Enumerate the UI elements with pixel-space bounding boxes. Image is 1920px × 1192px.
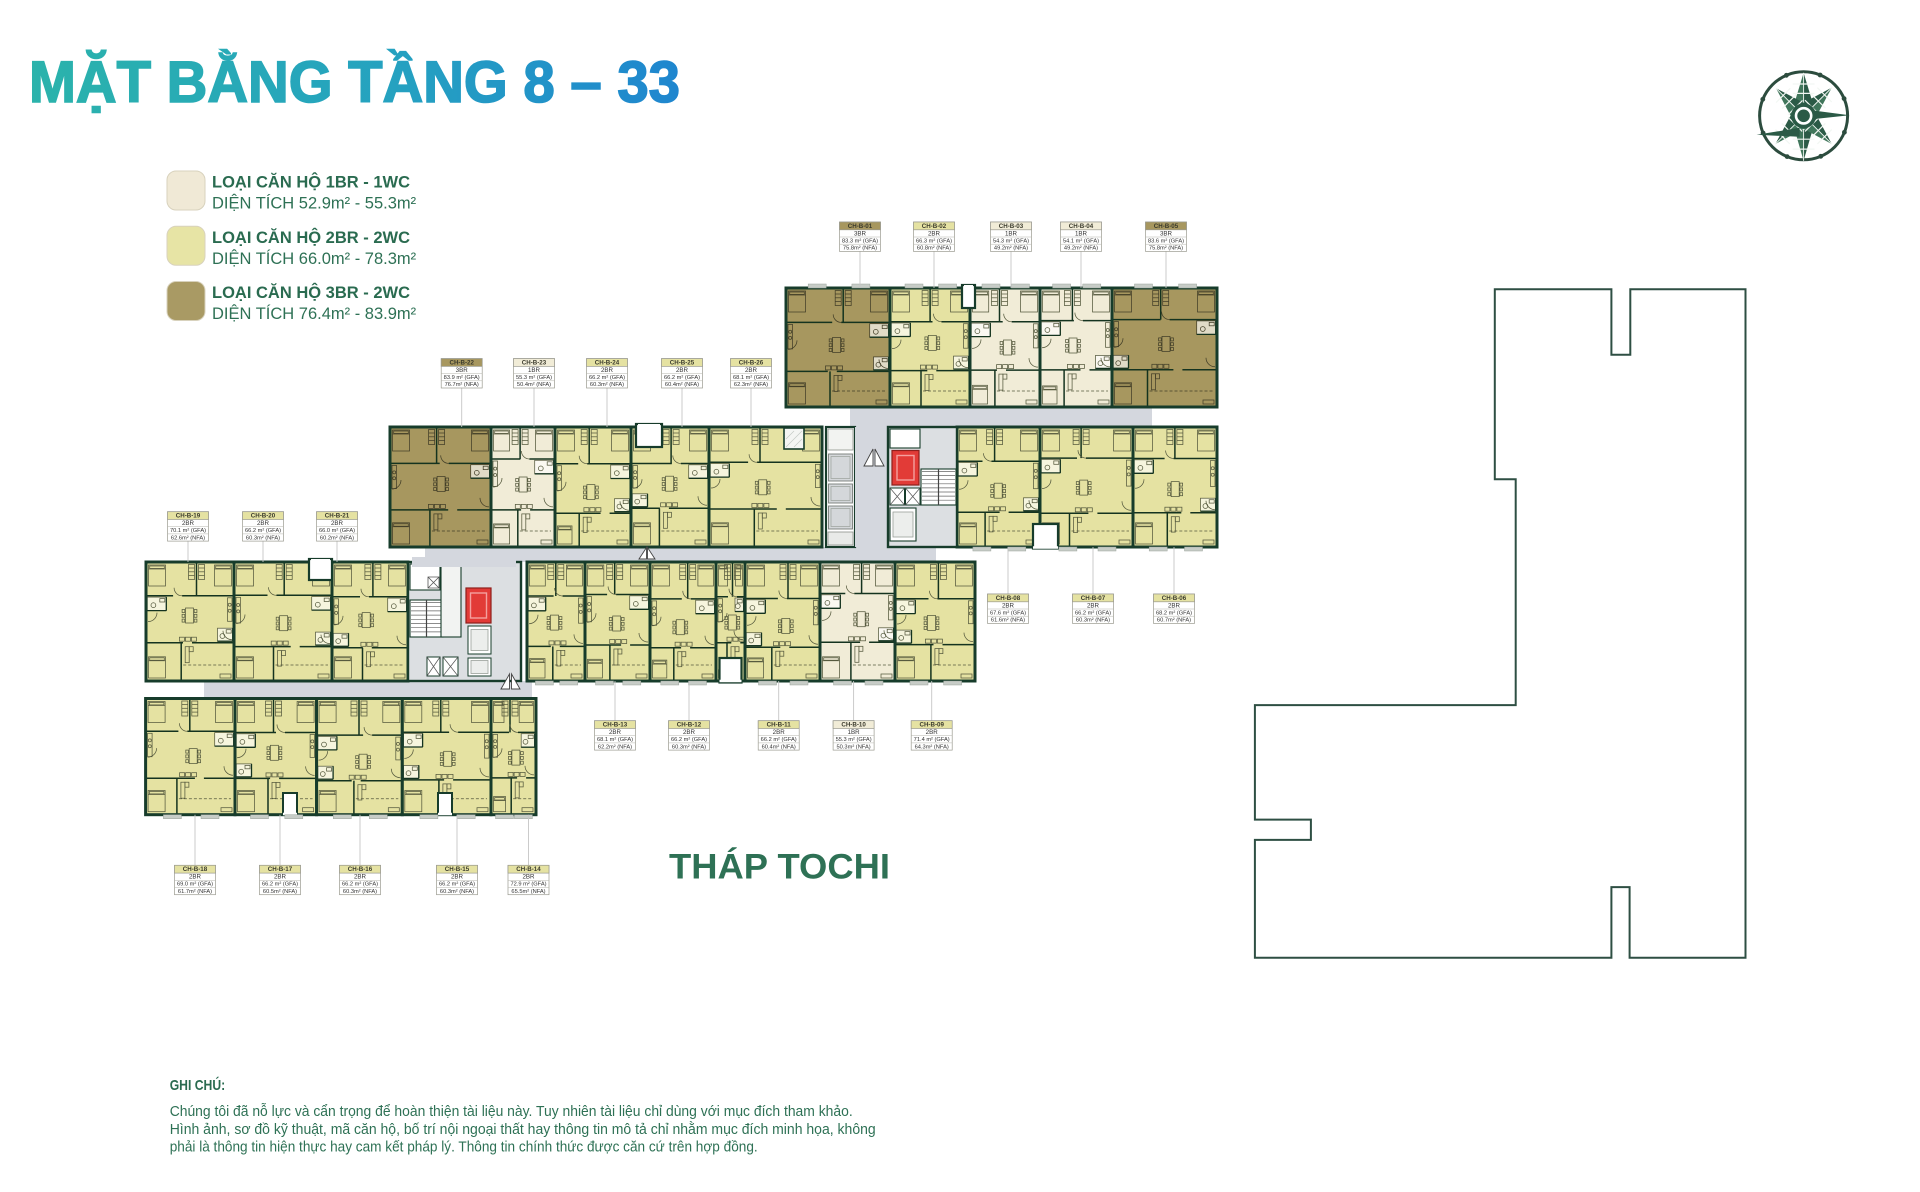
- svg-text:CH-B-25: CH-B-25: [670, 360, 695, 367]
- svg-text:CH-B-26: CH-B-26: [739, 360, 764, 367]
- svg-text:66.0 m² (GFA): 66.0 m² (GFA): [319, 528, 355, 534]
- svg-text:DIỆN TÍCH 76.4m² - 83.9m²: DIỆN TÍCH 76.4m² - 83.9m²: [212, 304, 417, 323]
- svg-text:66.2 m² (GFA): 66.2 m² (GFA): [262, 882, 298, 888]
- svg-text:67.6 m² (GFA): 67.6 m² (GFA): [990, 610, 1026, 616]
- svg-text:CH-B-09: CH-B-09: [919, 722, 944, 729]
- svg-text:66.2 m² (GFA): 66.2 m² (GFA): [439, 882, 475, 888]
- svg-text:CH-B-10: CH-B-10: [841, 722, 866, 729]
- svg-text:2BR: 2BR: [683, 729, 696, 736]
- svg-text:2BR: 2BR: [1168, 602, 1181, 609]
- svg-text:CH-B-13: CH-B-13: [603, 722, 628, 729]
- svg-text:2BR: 2BR: [1002, 602, 1015, 609]
- svg-text:66.2 m² (GFA): 66.2 m² (GFA): [342, 882, 378, 888]
- svg-text:CH-B-08: CH-B-08: [996, 595, 1021, 602]
- svg-text:2BR: 2BR: [926, 729, 939, 736]
- svg-text:2BR: 2BR: [451, 874, 464, 881]
- svg-text:CH-B-05: CH-B-05: [1154, 223, 1179, 230]
- svg-text:49.2m² (NFA): 49.2m² (NFA): [1064, 246, 1098, 252]
- svg-text:61.7m² (NFA): 61.7m² (NFA): [178, 889, 212, 895]
- svg-text:LOẠI CĂN HỘ 3BR - 2WC: LOẠI CĂN HỘ 3BR - 2WC: [212, 283, 410, 302]
- svg-text:2BR: 2BR: [257, 520, 270, 527]
- svg-text:2BR: 2BR: [522, 874, 535, 881]
- svg-text:CH-B-17: CH-B-17: [268, 866, 293, 873]
- svg-text:3BR: 3BR: [854, 230, 867, 237]
- svg-text:1BR: 1BR: [848, 729, 861, 736]
- svg-text:66.2 m² (GFA): 66.2 m² (GFA): [761, 737, 797, 743]
- svg-text:3BR: 3BR: [456, 367, 469, 374]
- svg-text:2BR: 2BR: [354, 874, 367, 881]
- svg-text:CH-B-06: CH-B-06: [1162, 595, 1187, 602]
- svg-text:CH-B-03: CH-B-03: [999, 223, 1024, 230]
- svg-text:54.1 m² (GFA): 54.1 m² (GFA): [1063, 238, 1099, 244]
- svg-text:LOẠI CĂN HỘ 1BR - 1WC: LOẠI CĂN HỘ 1BR - 1WC: [212, 173, 410, 192]
- svg-text:66.2 m² (GFA): 66.2 m² (GFA): [1075, 610, 1111, 616]
- svg-text:1BR: 1BR: [1075, 230, 1088, 237]
- svg-text:2BR: 2BR: [676, 367, 689, 374]
- svg-text:CH-B-02: CH-B-02: [922, 223, 947, 230]
- svg-text:60.4m² (NFA): 60.4m² (NFA): [665, 382, 699, 388]
- svg-text:68.2 m² (GFA): 68.2 m² (GFA): [1156, 610, 1192, 616]
- svg-text:66.2 m² (GFA): 66.2 m² (GFA): [671, 737, 707, 743]
- svg-text:72.9 m² (GFA): 72.9 m² (GFA): [510, 882, 546, 888]
- svg-text:66.2 m² (GFA): 66.2 m² (GFA): [589, 375, 625, 381]
- svg-text:66.2 m² (GFA): 66.2 m² (GFA): [664, 375, 700, 381]
- svg-text:CH-B-07: CH-B-07: [1081, 595, 1106, 602]
- svg-text:66.3 m² (GFA): 66.3 m² (GFA): [916, 238, 952, 244]
- svg-text:MẶT BẰNG TẦNG 8 – 33: MẶT BẰNG TẦNG 8 – 33: [29, 50, 680, 115]
- svg-text:75.8m² (NFA): 75.8m² (NFA): [1149, 246, 1183, 252]
- svg-text:CH-B-15: CH-B-15: [445, 866, 470, 873]
- svg-text:Hình ảnh, sơ đồ kỹ thuật, mã c: Hình ảnh, sơ đồ kỹ thuật, mã căn hộ, bố …: [170, 1121, 876, 1138]
- svg-text:60.2m² (NFA): 60.2m² (NFA): [320, 535, 354, 541]
- svg-text:CH-B-04: CH-B-04: [1069, 223, 1094, 230]
- svg-text:49.2m² (NFA): 49.2m² (NFA): [994, 246, 1028, 252]
- svg-text:CH-B-23: CH-B-23: [522, 360, 547, 367]
- svg-text:60.3m² (NFA): 60.3m² (NFA): [672, 744, 706, 750]
- svg-text:68.1 m² (GFA): 68.1 m² (GFA): [597, 737, 633, 743]
- svg-text:76.7m² (NFA): 76.7m² (NFA): [445, 382, 479, 388]
- svg-text:60.3m² (NFA): 60.3m² (NFA): [440, 889, 474, 895]
- svg-text:60.8m² (NFA): 60.8m² (NFA): [917, 246, 951, 252]
- svg-text:CH-B-21: CH-B-21: [325, 513, 350, 520]
- svg-text:2BR: 2BR: [745, 367, 758, 374]
- svg-text:CH-B-11: CH-B-11: [767, 722, 792, 729]
- svg-text:75.8m² (NFA): 75.8m² (NFA): [843, 246, 877, 252]
- svg-text:60.4m² (NFA): 60.4m² (NFA): [762, 744, 796, 750]
- svg-text:1BR: 1BR: [528, 367, 541, 374]
- svg-text:THÁP TOCHI: THÁP TOCHI: [669, 846, 890, 886]
- svg-text:54.3 m² (GFA): 54.3 m² (GFA): [993, 238, 1029, 244]
- svg-text:60.3m² (NFA): 60.3m² (NFA): [246, 535, 280, 541]
- svg-text:55.3 m² (GFA): 55.3 m² (GFA): [516, 375, 552, 381]
- svg-text:3BR: 3BR: [1160, 230, 1173, 237]
- svg-text:83.6 m² (GFA): 83.6 m² (GFA): [1148, 238, 1184, 244]
- svg-text:50.4m² (NFA): 50.4m² (NFA): [517, 382, 551, 388]
- svg-text:2BR: 2BR: [601, 367, 614, 374]
- svg-text:2BR: 2BR: [182, 520, 195, 527]
- svg-text:60.3m² (NFA): 60.3m² (NFA): [590, 382, 624, 388]
- svg-text:2BR: 2BR: [773, 729, 786, 736]
- svg-text:2BR: 2BR: [928, 230, 941, 237]
- svg-text:2BR: 2BR: [1087, 602, 1100, 609]
- svg-text:50.3m² (NFA): 50.3m² (NFA): [837, 744, 871, 750]
- svg-text:61.6m² (NFA): 61.6m² (NFA): [991, 618, 1025, 624]
- svg-text:LOẠI CĂN HỘ 2BR - 2WC: LOẠI CĂN HỘ 2BR - 2WC: [212, 228, 410, 247]
- svg-text:2BR: 2BR: [189, 874, 202, 881]
- svg-text:CH-B-18: CH-B-18: [183, 866, 208, 873]
- svg-text:1BR: 1BR: [1005, 230, 1018, 237]
- svg-text:60.5m² (NFA): 60.5m² (NFA): [263, 889, 297, 895]
- svg-text:66.2 m² (GFA): 66.2 m² (GFA): [245, 528, 281, 534]
- svg-text:2BR: 2BR: [274, 874, 287, 881]
- svg-text:DIỆN TÍCH 66.0m² - 78.3m²: DIỆN TÍCH 66.0m² - 78.3m²: [212, 249, 417, 268]
- svg-text:CH-B-20: CH-B-20: [251, 513, 276, 520]
- svg-text:65.5m² (NFA): 65.5m² (NFA): [511, 889, 545, 895]
- svg-text:CH-B-14: CH-B-14: [516, 866, 541, 873]
- svg-text:62.3m² (NFA): 62.3m² (NFA): [734, 382, 768, 388]
- svg-text:DIỆN TÍCH 52.9m² - 55.3m²: DIỆN TÍCH 52.9m² - 55.3m²: [212, 194, 417, 213]
- svg-text:62.2m² (NFA): 62.2m² (NFA): [598, 744, 632, 750]
- svg-text:CH-B-24: CH-B-24: [595, 360, 620, 367]
- svg-text:68.1 m² (GFA): 68.1 m² (GFA): [733, 375, 769, 381]
- svg-text:GHI CHÚ:: GHI CHÚ:: [170, 1076, 226, 1094]
- svg-text:2BR: 2BR: [609, 729, 622, 736]
- svg-text:70.1 m² (GFA): 70.1 m² (GFA): [170, 528, 206, 534]
- svg-text:CH-B-12: CH-B-12: [677, 722, 702, 729]
- svg-text:60.3m² (NFA): 60.3m² (NFA): [343, 889, 377, 895]
- svg-text:2BR: 2BR: [331, 520, 344, 527]
- svg-text:60.3m² (NFA): 60.3m² (NFA): [1076, 618, 1110, 624]
- svg-text:CH-B-16: CH-B-16: [348, 866, 373, 873]
- svg-text:69.0 m² (GFA): 69.0 m² (GFA): [177, 882, 213, 888]
- svg-text:CH-B-22: CH-B-22: [449, 360, 474, 367]
- svg-text:83.3 m² (GFA): 83.3 m² (GFA): [842, 238, 878, 244]
- svg-text:71.4 m² (GFA): 71.4 m² (GFA): [914, 737, 950, 743]
- svg-text:55.3 m² (GFA): 55.3 m² (GFA): [836, 737, 872, 743]
- svg-text:83.9 m² (GFA): 83.9 m² (GFA): [444, 375, 480, 381]
- svg-text:60.7m² (NFA): 60.7m² (NFA): [1157, 618, 1191, 624]
- svg-text:Chúng tôi đã nỗ lực và cẩn trọ: Chúng tôi đã nỗ lực và cẩn trọng để hoàn…: [170, 1103, 853, 1120]
- svg-text:62.6m² (NFA): 62.6m² (NFA): [171, 535, 205, 541]
- svg-text:CH-B-19: CH-B-19: [176, 513, 201, 520]
- svg-text:CH-B-01: CH-B-01: [848, 223, 873, 230]
- svg-text:phải là thông tin hiện thực ha: phải là thông tin hiện thực hay cam kết …: [170, 1140, 758, 1156]
- svg-text:64.3m² (NFA): 64.3m² (NFA): [915, 744, 949, 750]
